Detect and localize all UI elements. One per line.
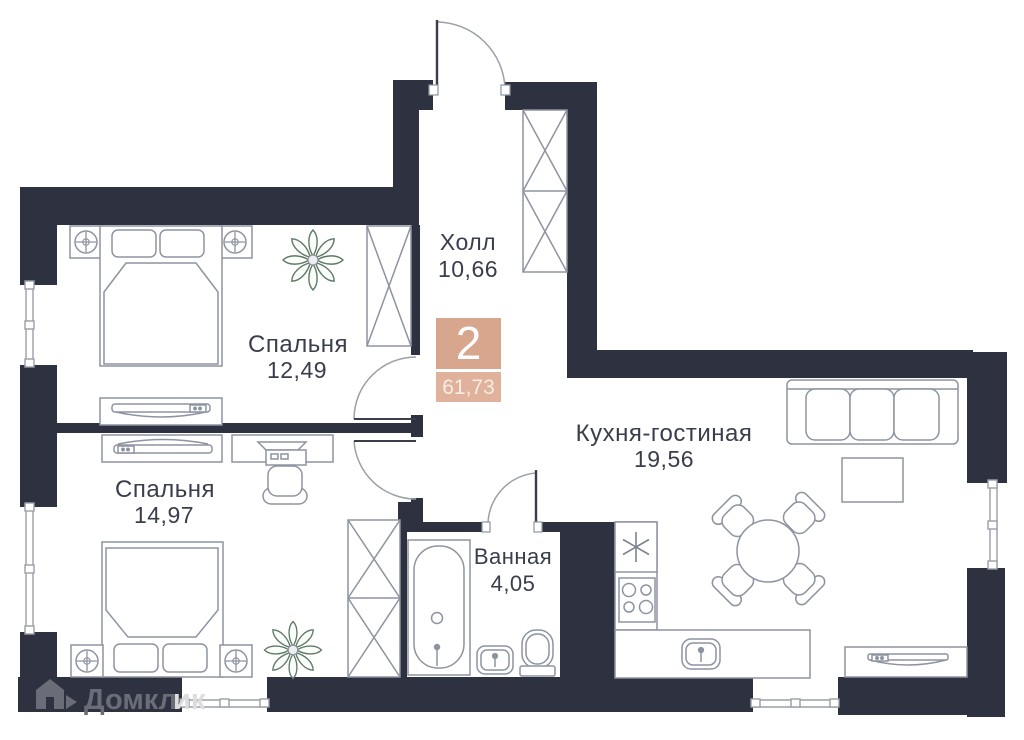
wardrobe-icon	[367, 226, 411, 346]
dining-table-icon	[710, 490, 827, 608]
kitchen-living-area: 19,56	[634, 446, 694, 472]
badge-total-area: 61,73	[442, 376, 495, 399]
window-kitchen-bottom	[751, 699, 839, 707]
watermark-text-dark: Домкл	[84, 684, 177, 716]
bedroom1-label: Спальня	[248, 331, 348, 358]
desk-icon	[232, 435, 333, 465]
bathroom-label: Ванная	[474, 544, 552, 569]
sink-icon	[477, 646, 513, 674]
lamp-icon	[225, 650, 247, 672]
bedroom2-area: 14,97	[134, 502, 194, 528]
plant-icon	[265, 622, 322, 679]
kitchen-sink-icon	[682, 639, 720, 669]
area-badge: 2 61,73	[436, 317, 501, 402]
stove-icon	[619, 578, 655, 622]
tv-dresser-icon	[102, 435, 222, 462]
bedroom2-door	[354, 441, 416, 499]
lamp-icon	[224, 231, 246, 253]
double-bed-icon	[100, 226, 222, 366]
desk-chair-icon	[263, 466, 307, 504]
entrance-door	[429, 20, 510, 95]
hall-label: Холл	[440, 229, 496, 255]
bathtub-icon	[408, 540, 470, 675]
double-bed-icon	[102, 542, 223, 677]
bedroom1-door	[354, 357, 416, 419]
bedroom2-furniture	[71, 435, 400, 677]
floorplan-screenshot: Холл 10,66 Спальня 12,49 Спальня 14,97 К…	[0, 0, 1024, 740]
coffee-table-icon	[842, 458, 903, 502]
watermark-text-light: ик	[173, 684, 206, 716]
hall-wardrobe-icon	[523, 110, 567, 272]
wardrobe-icon	[348, 520, 400, 677]
window-bedroom2-left	[25, 503, 34, 634]
toilet-icon	[520, 630, 555, 676]
bedroom1-furniture	[70, 226, 411, 425]
sofa-icon	[787, 380, 958, 444]
tv-dresser-icon	[100, 398, 222, 425]
lamp-icon	[75, 231, 97, 253]
kitchen-living-label: Кухня-гостиная	[576, 420, 753, 447]
bathroom-door	[482, 470, 542, 532]
plant-icon	[283, 230, 343, 290]
bathroom-area: 4,05	[491, 571, 536, 596]
badge-rooms-count: 2	[456, 317, 482, 369]
fridge-icon	[615, 522, 657, 572]
tv-stand-icon	[845, 647, 967, 677]
window-bedroom1-left	[25, 281, 34, 367]
floorplan-svg: Холл 10,66 Спальня 12,49 Спальня 14,97 К…	[0, 0, 1024, 740]
bedroom2-label: Спальня	[115, 476, 215, 503]
hall-area: 10,66	[438, 256, 498, 282]
window-kitchen-right	[988, 480, 997, 569]
bedroom1-area: 12,49	[267, 357, 327, 383]
lamp-icon	[76, 650, 98, 672]
